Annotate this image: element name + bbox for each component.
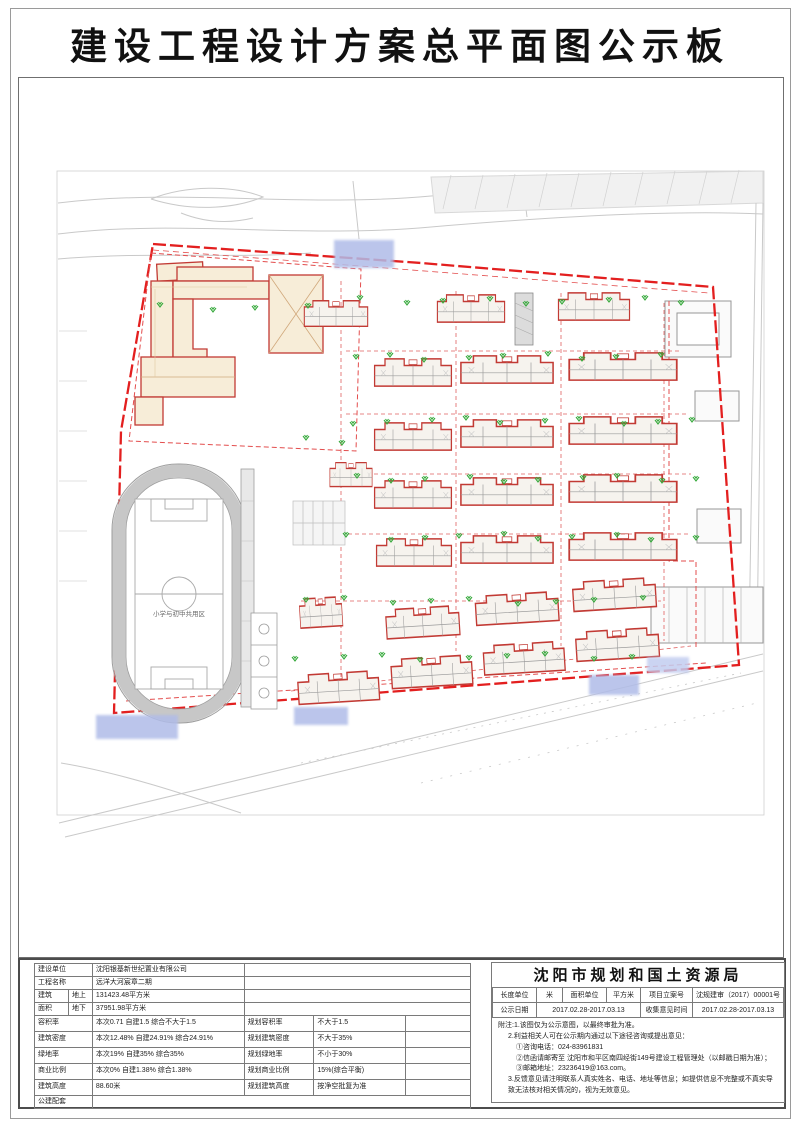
table-row: 商业比例 本次0% 自建1.38% 综合1.38% 规划商业比例 15%(综合平… <box>35 1064 471 1080</box>
authority-name: 沈阳市规划和国土资源局 <box>492 963 784 987</box>
table-row: 工程名称 远洋大河宸章二期 <box>35 977 471 990</box>
table-row: 公建配套 <box>35 1096 471 1109</box>
tree-icon <box>466 655 472 660</box>
tree-icon <box>210 307 216 312</box>
tree-icon <box>501 531 507 536</box>
info-section: 建设单位 沈阳银基新世纪置业有限公司 工程名称 远洋大河宸章二期 建筑 地上 1… <box>18 958 786 1109</box>
authority-block: 沈阳市规划和国土资源局 长度单位 米 面积单位 平方米 项目立案号 沈规建审（2… <box>491 962 785 1103</box>
tree-icon <box>339 440 345 445</box>
building-block <box>330 463 372 487</box>
table-row: 公示日期 2017.02.28-2017.03.13 收集意见时间 2017.0… <box>493 1003 784 1018</box>
existing-structure <box>515 293 533 345</box>
table-row: 绿地率 本次19% 自建35% 综合35% 规划绿地率 不小于30% <box>35 1048 471 1064</box>
building-block <box>375 359 452 386</box>
building-block <box>575 627 659 661</box>
note-line: ②信函请邮寄至 沈阳市和平区南四经街149号建设工程管理处（以邮戳日期为准）； <box>498 1054 778 1065</box>
tree-icon <box>303 435 309 440</box>
neighbour-buildings <box>651 301 763 643</box>
table-row: 建筑高度 88.60米 规划建筑高度 按净空批复为准 <box>35 1080 471 1096</box>
tree-icon <box>500 353 506 358</box>
note-line: ③邮箱地址：23236419@163.com。 <box>498 1064 778 1075</box>
note-line: 3.反馈意见请注明联系人真实姓名、电话、地址等信息；如提供信息不完整或不真实导致… <box>498 1075 778 1097</box>
tree-icon <box>341 654 347 659</box>
tree-icon <box>404 300 410 305</box>
tree-icon <box>292 656 298 661</box>
building-block <box>385 606 460 639</box>
tree-icon <box>693 476 699 481</box>
tree-icon <box>466 355 472 360</box>
football-pitch <box>135 499 223 689</box>
page-title: 建设工程设计方案总平面图公示板 <box>0 16 800 70</box>
tree-icon <box>429 417 435 422</box>
note-line: 附注:1.该图仅为公示意图，以最终审批为准。 <box>498 1021 778 1032</box>
table-row: 面积 地下 37951.98平方米 <box>35 1003 471 1016</box>
authority-meta-table: 长度单位 米 面积单位 平方米 项目立案号 沈规建审（2017）00001号 公… <box>492 987 784 1018</box>
site-plan-drawing: 小学与初中共用区 <box>19 78 783 957</box>
tree-icon <box>341 595 347 600</box>
table-row: 建设单位 沈阳银基新世纪置业有限公司 <box>35 964 471 977</box>
tree-icon <box>428 598 434 603</box>
tree-icon <box>357 295 363 300</box>
building-block <box>437 295 504 322</box>
table-row: 容积率 本次0.71 自建1.5 综合不大于1.5 规划容积率 不大于1.5 <box>35 1016 471 1032</box>
building-block <box>483 641 565 675</box>
building-block <box>558 293 629 320</box>
building-block <box>391 655 473 689</box>
building-block <box>375 423 452 450</box>
table-row: 长度单位 米 面积单位 平方米 项目立案号 沈规建审（2017）00001号 <box>493 988 784 1003</box>
field-label: 小学与初中共用区 <box>153 609 206 618</box>
parking-area <box>293 501 345 545</box>
authority-notes: 附注:1.该图仅为公示意图，以最终审批为准。 2.利益相关人可在公示期内通过以下… <box>492 1018 784 1097</box>
building-block <box>569 533 677 560</box>
tree-icon <box>252 305 258 310</box>
basketball-courts <box>251 613 277 709</box>
project-info-table: 建设单位 沈阳银基新世纪置业有限公司 工程名称 远洋大河宸章二期 建筑 地上 1… <box>34 963 471 1109</box>
building-block <box>304 301 367 327</box>
tree-icon <box>569 534 575 539</box>
tree-icon <box>614 532 620 537</box>
note-line: 2.利益相关人可在公示期内通过以下途径咨询或提出意见： <box>498 1032 778 1043</box>
tree-icon <box>642 295 648 300</box>
tree-icon <box>542 418 548 423</box>
building-block <box>297 671 379 705</box>
notice-board-page: 建设工程设计方案总平面图公示板 <box>0 0 800 1131</box>
building-block <box>461 478 553 505</box>
table-row: 建筑密度 本次12.48% 自建24.91% 综合24.91% 规划建筑密度 不… <box>35 1032 471 1048</box>
table-row: 建筑 地上 131423.48平方米 <box>35 990 471 1003</box>
building-block <box>375 481 452 508</box>
tree-icon <box>545 351 551 356</box>
tree-icon <box>467 474 473 479</box>
tree-icon <box>466 596 472 601</box>
note-line: ①咨询电话：024-83961831 <box>498 1043 778 1054</box>
building-block <box>461 356 553 383</box>
building-block <box>461 420 553 447</box>
tree-icon <box>379 652 385 657</box>
building-block <box>572 577 656 611</box>
tree-icon <box>350 421 356 426</box>
site-plan-panel: 小学与初中共用区 <box>18 77 784 958</box>
tree-icon <box>463 415 469 420</box>
school-buildings <box>135 262 323 425</box>
building-block <box>475 591 559 625</box>
residential-buildings <box>293 293 677 705</box>
tree-icon <box>387 352 393 357</box>
building-block <box>377 539 452 566</box>
tree-icon <box>576 416 582 421</box>
tree-icon <box>689 417 695 422</box>
